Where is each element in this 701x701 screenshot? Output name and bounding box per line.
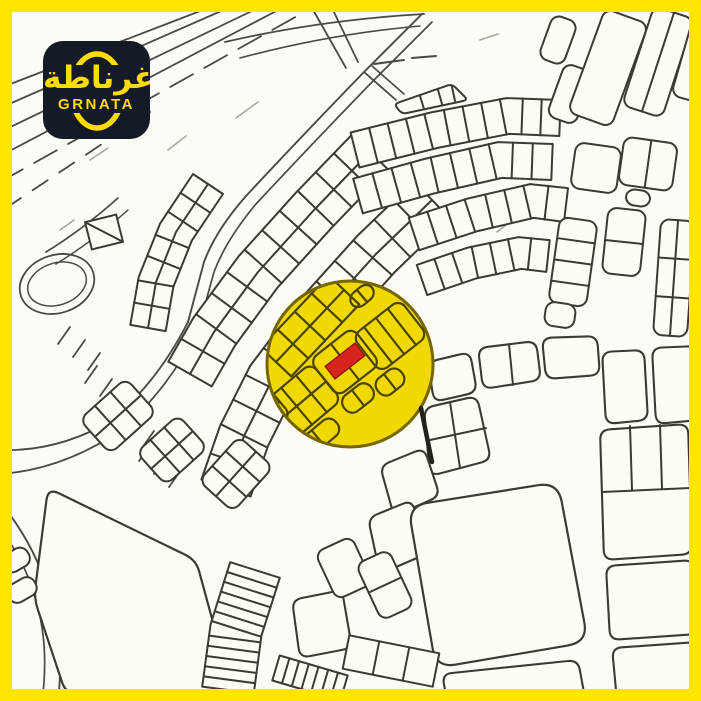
- logo-arabic-text: غرناطة: [43, 61, 150, 95]
- highlight-circle[interactable]: [253, 276, 433, 462]
- grnata-logo: غرناطة GRNATA: [43, 41, 150, 139]
- listing-map-image: غرناطة GRNATA: [0, 0, 701, 701]
- logo-latin-text: GRNATA: [43, 96, 150, 113]
